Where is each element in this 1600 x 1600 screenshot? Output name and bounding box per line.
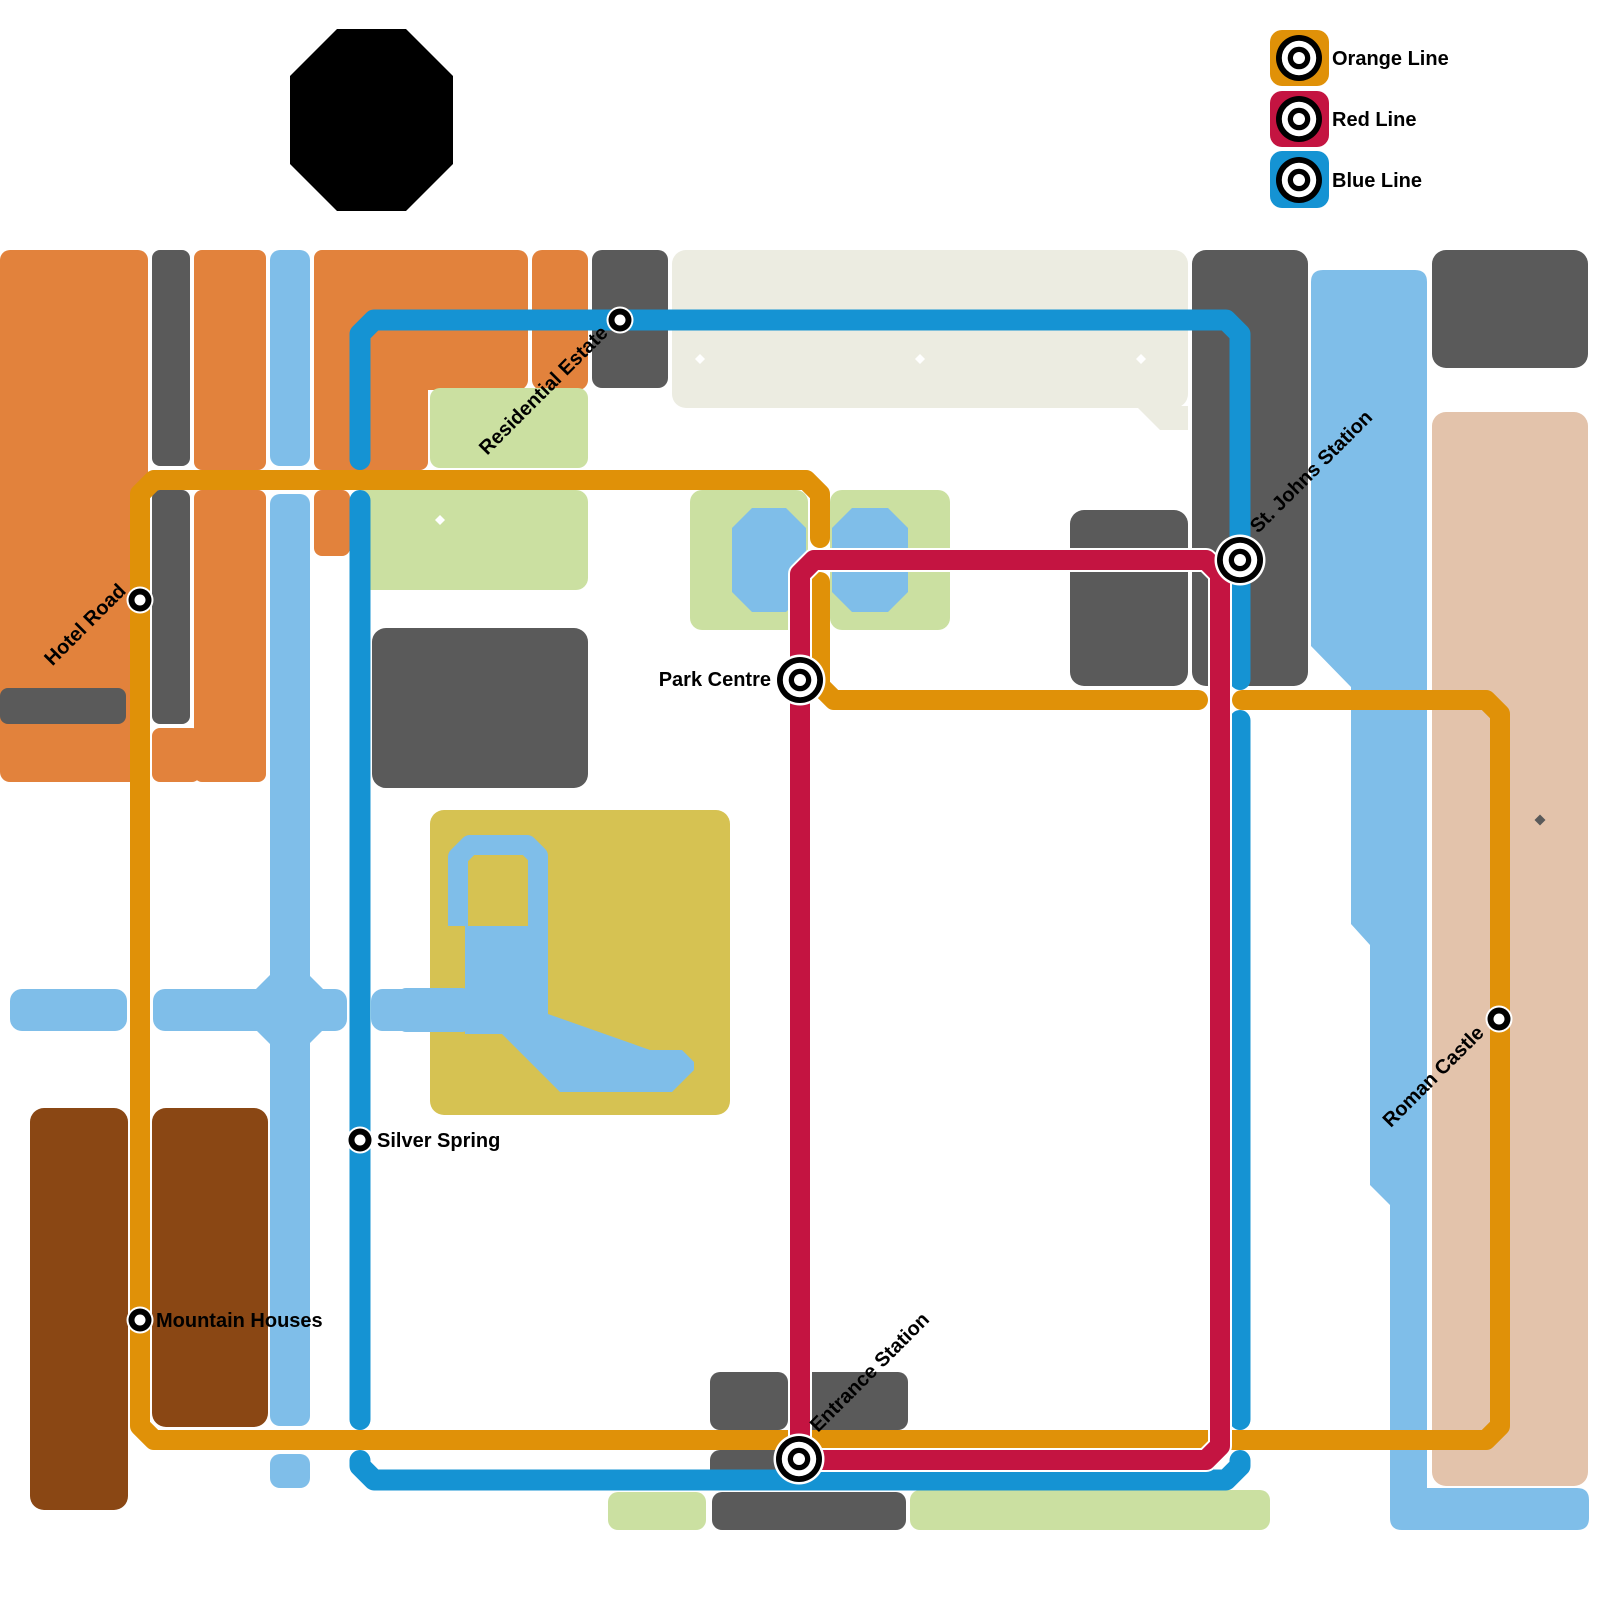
svg-text:Red Line: Red Line	[1332, 109, 1416, 131]
svg-text:Mountain Houses: Mountain Houses	[156, 1310, 323, 1332]
svg-text:Silver Spring: Silver Spring	[377, 1130, 500, 1152]
svg-text:Park Centre: Park Centre	[659, 669, 771, 691]
svg-text:Blue Line: Blue Line	[1332, 170, 1422, 192]
svg-text:Orange Line: Orange Line	[1332, 48, 1449, 70]
